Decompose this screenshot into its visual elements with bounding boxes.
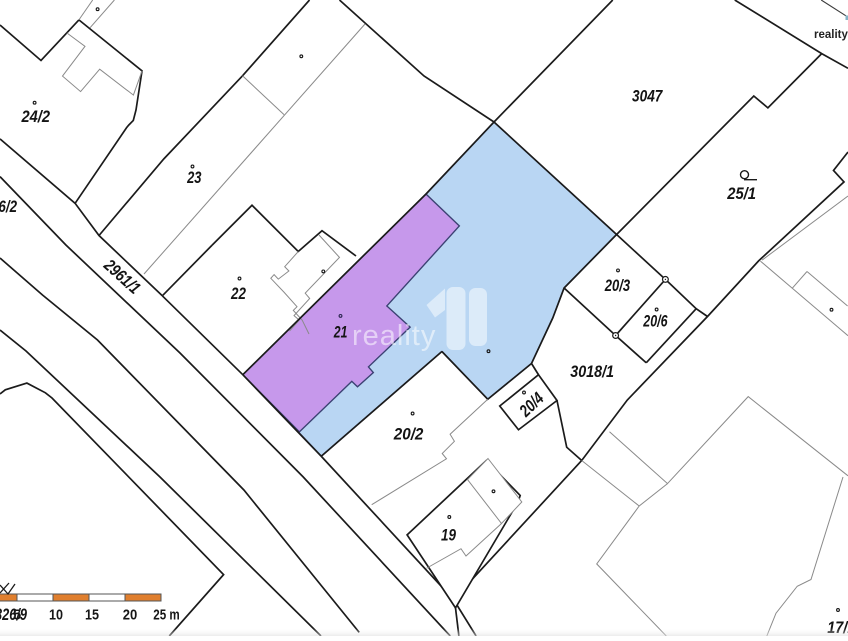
svg-text:25 m: 25 m [153,607,180,624]
svg-text:20/3: 20/3 [604,276,630,295]
svg-text:20/2: 20/2 [393,425,424,444]
svg-text:21: 21 [333,322,347,341]
svg-text:3047: 3047 [632,87,664,106]
svg-text:10: 10 [49,607,63,624]
svg-text:reality: reality [814,29,848,41]
svg-text:5: 5 [13,607,21,624]
svg-text:20/6: 20/6 [643,312,668,331]
svg-text:26/2: 26/2 [0,197,17,216]
svg-text:15: 15 [85,607,99,624]
svg-text:3018/1: 3018/1 [570,362,614,381]
svg-text:19: 19 [441,526,456,545]
svg-text:23: 23 [186,168,202,187]
svg-text:25/1: 25/1 [726,184,756,203]
svg-text:22: 22 [230,284,246,303]
svg-text:24/2: 24/2 [21,107,51,126]
svg-text:20: 20 [123,607,138,624]
svg-text:reality: reality [352,320,436,352]
